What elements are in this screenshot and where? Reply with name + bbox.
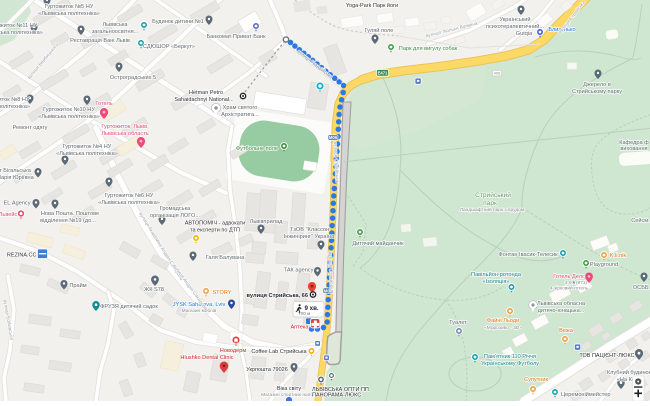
svg-text:ЖК S78: ЖК S78 bbox=[144, 287, 164, 293]
svg-text:Hetman Petro: Hetman Petro bbox=[189, 90, 223, 96]
svg-text:Львівська область: Львівська область bbox=[101, 131, 148, 137]
svg-text:«Львівська політехніка»: «Львівська політехніка» bbox=[0, 30, 43, 36]
svg-text:Марія Юріївна: Марія Юріївна bbox=[0, 175, 35, 181]
svg-text:Стрийський: Стрийський bbox=[475, 191, 511, 199]
svg-text:Coffee Lab Стрийська: Coffee Lab Стрийська bbox=[251, 348, 307, 355]
svg-text:гуртожиток №11 НУ: гуртожиток №11 НУ bbox=[0, 23, 38, 29]
svg-text:Сейсм...: Сейсм... bbox=[631, 217, 650, 224]
svg-text:Футбольне поле: Футбольне поле bbox=[236, 146, 278, 152]
svg-text:організація ЛОГО...: організація ЛОГО... bbox=[150, 213, 200, 219]
svg-text:406: 406 bbox=[494, 71, 501, 76]
svg-text:«Ізоляція»: «Ізоляція» bbox=[482, 279, 509, 285]
svg-text:Sahaidachnyi National...: Sahaidachnyi National... bbox=[174, 97, 234, 103]
svg-text:Ландшафтний парк з прудом: Ландшафтний парк з прудом bbox=[460, 206, 524, 213]
svg-text:Гуртожиток №4 НУ: Гуртожиток №4 НУ bbox=[63, 144, 112, 150]
svg-text:Playground: Playground bbox=[590, 262, 618, 268]
svg-text:Львівприлад: Львівприлад bbox=[250, 219, 283, 225]
svg-text:Дитячий майданчик: Дитячий майданчик bbox=[352, 240, 404, 247]
svg-text:ОСББ...: ОСББ... bbox=[633, 285, 650, 291]
svg-text:Церемоніймейстер: Церемоніймейстер bbox=[561, 391, 610, 398]
svg-text:АВТОПОМІЧ - адвокати: АВТОПОМІЧ - адвокати bbox=[185, 221, 246, 227]
svg-text:Гуртожиток №5 НУ: Гуртожиток №5 НУ bbox=[45, 4, 94, 10]
svg-text:Гуртожиток, Львів,: Гуртожиток, Львів, bbox=[101, 124, 149, 130]
svg-text:та експерти по ДТП: та експерти по ДТП bbox=[190, 228, 240, 234]
svg-text:Туалет: Туалет bbox=[449, 320, 467, 326]
svg-text:Джерело в: Джерело в bbox=[583, 82, 611, 88]
svg-text:Готель: Готель bbox=[95, 101, 112, 107]
svg-text:Павільйон-ротонда: Павільйон-ротонда bbox=[471, 271, 522, 278]
svg-text:«Львівська політехніка»: «Львівська політехніка» bbox=[98, 200, 160, 206]
svg-text:ТзОВ "Классон: ТзОВ "Классон bbox=[290, 227, 329, 233]
svg-text:дитячо-юнацька...: дитячо-юнацька... bbox=[538, 308, 585, 314]
svg-text:психотерапевтичний...: психотерапевтичний... bbox=[486, 23, 545, 30]
svg-text:Українському Футболу: Українському Футболу bbox=[481, 361, 539, 367]
svg-text:СДЮШОР «Беркут»: СДЮШОР «Беркут» bbox=[143, 44, 195, 50]
svg-text:виховання: виховання bbox=[620, 146, 647, 152]
svg-text:ТАК agency: ТАК agency bbox=[284, 268, 314, 274]
svg-text:E471: E471 bbox=[378, 71, 388, 76]
svg-text:Парк для вигулу собак: Парк для вигулу собак bbox=[399, 46, 458, 52]
svg-text:Банкомат Приват Банк: Банкомат Приват Банк bbox=[206, 34, 266, 40]
svg-text:Hlushko Dental Clinic: Hlushko Dental Clinic bbox=[180, 355, 233, 361]
svg-text:3,9★(971): 3,9★(971) bbox=[565, 280, 588, 286]
svg-text:загальноосвітня...: загальноосвітня... bbox=[92, 29, 139, 35]
svg-text:Gutqia: Gutqia bbox=[516, 31, 533, 37]
svg-text:ТОВ ПАЦІЄНТ-ЛЮКС: ТОВ ПАЦІЄНТ-ЛЮКС bbox=[579, 353, 634, 359]
svg-text:Львівська обласна: Львівська обласна bbox=[537, 301, 586, 307]
svg-text:EL.Agency: EL.Agency bbox=[3, 201, 30, 207]
svg-text:«Львівська політехніка»: «Львівська політехніка» bbox=[38, 11, 100, 17]
svg-text:REZINA.CC: REZINA.CC bbox=[7, 253, 37, 259]
svg-text:т Бігальська: т Бігальська bbox=[0, 168, 32, 174]
svg-text:700 м: 700 м bbox=[298, 311, 310, 316]
svg-text:Готель Делс: Готель Делс bbox=[553, 274, 585, 280]
svg-text:Клубний будинок: Клубний будинок bbox=[607, 369, 650, 376]
svg-text:Громадська: Громадська bbox=[160, 206, 191, 212]
svg-text:4-зірковий готель: 4-зірковий готель bbox=[550, 285, 589, 292]
svg-text:Гуляй поле: Гуляй поле bbox=[365, 27, 394, 34]
svg-text:Гуртожиток №6 НУ: Гуртожиток №6 НУ bbox=[105, 193, 154, 199]
svg-text:Супутник: Супутник bbox=[524, 377, 548, 383]
svg-text:Галя Балувана: Галя Балувана bbox=[206, 255, 246, 261]
svg-text:Новодерм: Новодерм bbox=[220, 348, 247, 354]
svg-text:«Львівська політехніка»: «Львівська політехніка» bbox=[38, 114, 100, 120]
svg-text:Український: Український bbox=[499, 16, 530, 23]
svg-text:«Морозиво - 3D»: «Морозиво - 3D» bbox=[484, 325, 522, 331]
svg-text:Інжиніринг" Україна: Інжиніринг" Україна bbox=[284, 234, 335, 240]
svg-text:парк: парк bbox=[483, 200, 497, 207]
svg-text:Храм святого: Храм святого bbox=[223, 105, 258, 111]
svg-text:Магазин меблів: Магазин меблів bbox=[182, 308, 217, 314]
svg-text:Стрийському парку: Стрийському парку bbox=[572, 88, 622, 95]
svg-text:вулиця Стрийська, 66: вулиця Стрийська, 66 bbox=[247, 292, 308, 299]
svg-text:Yoga-Park Парк йоги: Yoga-Park Парк йоги bbox=[346, 2, 398, 9]
svg-text:Остроградських 5: Остроградських 5 bbox=[110, 75, 156, 81]
svg-text:Гуртожиток №10 НУ: Гуртожиток №10 НУ bbox=[43, 107, 95, 113]
svg-text:Вежа: Вежа bbox=[559, 328, 574, 334]
svg-text:М06: М06 bbox=[329, 135, 338, 140]
svg-text:ПАНОРАМА-ЛЮКС: ПАНОРАМА-ЛЮКС bbox=[312, 393, 361, 399]
svg-text:H: H bbox=[234, 338, 238, 344]
svg-text:відділення №19 (до...: відділення №19 (до... bbox=[40, 218, 96, 224]
svg-text:Львейс: Львейс bbox=[0, 211, 17, 218]
svg-text:політехніка»: політехніка» bbox=[0, 104, 30, 110]
svg-text:Укрпошта 79026: Укрпошта 79026 bbox=[246, 367, 288, 373]
svg-text:K.li.nik: K.li.nik bbox=[610, 253, 627, 259]
svg-text:Архістратига...: Архістратига... bbox=[221, 112, 259, 118]
svg-text:Реставрація Вані Львів: Реставрація Вані Львів bbox=[70, 38, 130, 44]
svg-text:Віка світу: Віка світу bbox=[277, 386, 301, 392]
svg-text:Аптека: Аптека bbox=[290, 325, 309, 331]
svg-text:Файні Льоди: Файні Льоди bbox=[487, 317, 519, 324]
svg-text:«Львівська політехніка»: «Львівська політехніка» bbox=[56, 151, 118, 157]
svg-text:иток №8 НУ: иток №8 НУ bbox=[0, 97, 30, 103]
svg-text:Львівська: Львівська bbox=[102, 22, 128, 28]
svg-text:ФРУЗЯ дитячий садок: ФРУЗЯ дитячий садок bbox=[100, 303, 158, 310]
svg-text:Ремонт одягу: Ремонт одягу bbox=[13, 125, 48, 131]
svg-text:Пам'ятник 110 Річчя: Пам'ятник 110 Річчя bbox=[484, 354, 536, 360]
svg-text:Прайм: Прайм bbox=[69, 282, 86, 289]
svg-text:Нова Пошта. Поштове: Нова Пошта. Поштове bbox=[41, 211, 99, 217]
svg-text:STORY: STORY bbox=[212, 290, 231, 296]
svg-text:Будинок дитини №1: Будинок дитини №1 bbox=[152, 19, 204, 25]
svg-text:Фонтан Івасик-Телесик: Фонтан Івасик-Телесик bbox=[498, 252, 558, 258]
